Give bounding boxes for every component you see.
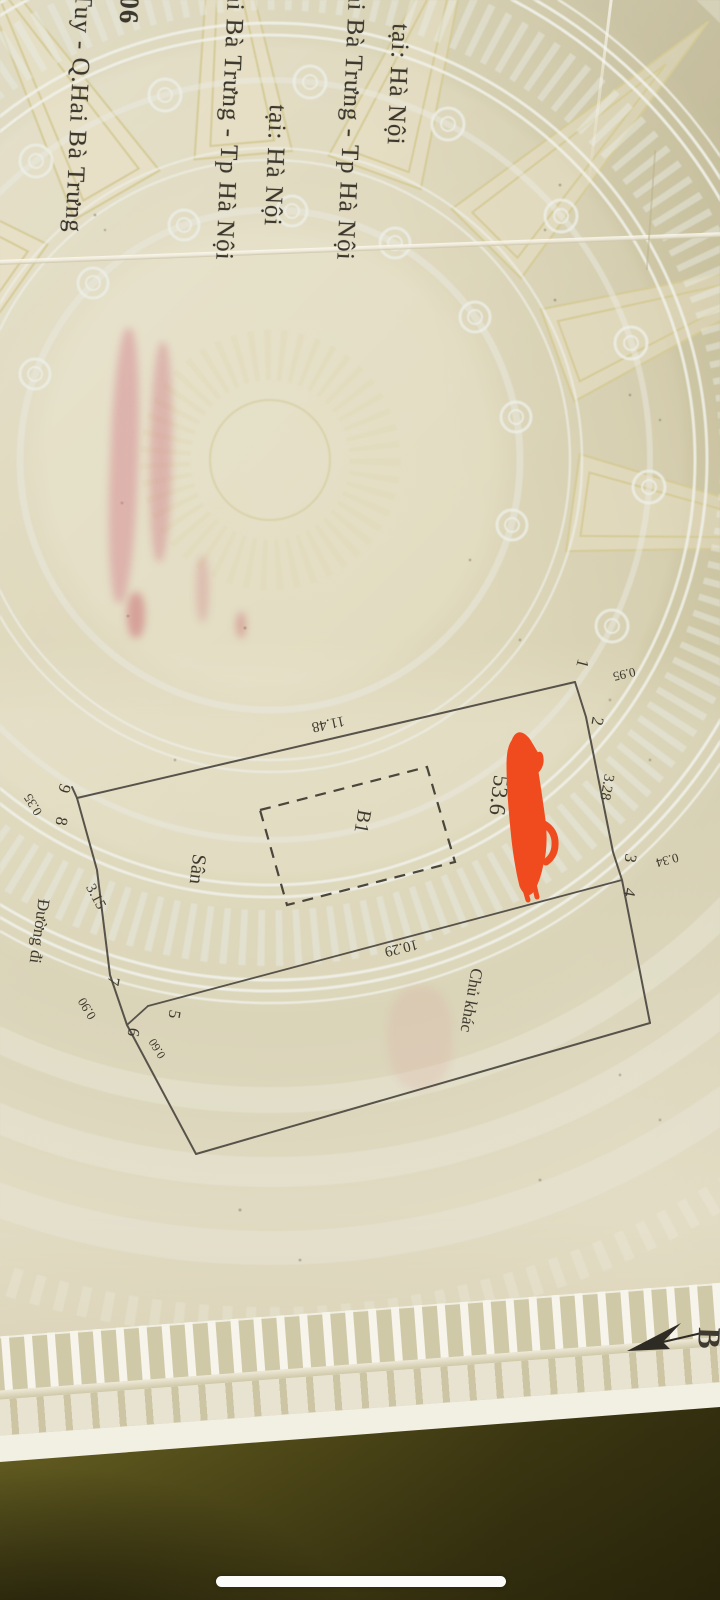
yard-label: Sân — [185, 853, 210, 885]
building-label: B1 — [350, 808, 376, 835]
cadastral-diagram: 1 2 3 4 5 6 7 8 9 0.95 3.28 0.34 11.48 1… — [0, 0, 720, 1600]
plot-boundary — [72, 682, 650, 1154]
vertex-5: 5 — [164, 1008, 184, 1020]
red-scribble-annotation — [508, 734, 555, 900]
vertex-1: 1 — [572, 657, 593, 670]
vertex-3: 3 — [620, 852, 640, 864]
dim-0-60: 0.60 — [145, 1036, 168, 1061]
vertex-6: 6 — [123, 1026, 143, 1038]
dim-11-48: 11.48 — [310, 712, 346, 735]
vertex-9: 9 — [54, 782, 75, 796]
dim-3-28: 3.28 — [596, 773, 616, 802]
photo-of-land-certificate: tại: Hà Nội ai Bà Trưng - Tp Hà Nội tại:… — [0, 0, 720, 1600]
neighbor-label: Chủ khác — [457, 967, 487, 1034]
vertex-2: 2 — [587, 715, 607, 727]
dim-3-15: 3.15 — [82, 881, 108, 912]
dim-0-90: 0.90 — [74, 995, 99, 1022]
vertex-4: 4 — [619, 886, 639, 898]
road-label: Đường đi — [26, 898, 54, 965]
dashed-building-outline — [260, 767, 455, 905]
dim-0-95: 0.95 — [612, 665, 638, 685]
dim-0-34: 0.34 — [654, 850, 680, 871]
north-label: B — [691, 1327, 720, 1350]
home-indicator[interactable] — [216, 1576, 506, 1587]
vertex-8: 8 — [51, 815, 71, 827]
dim-0-35: 0.35 — [20, 791, 45, 818]
